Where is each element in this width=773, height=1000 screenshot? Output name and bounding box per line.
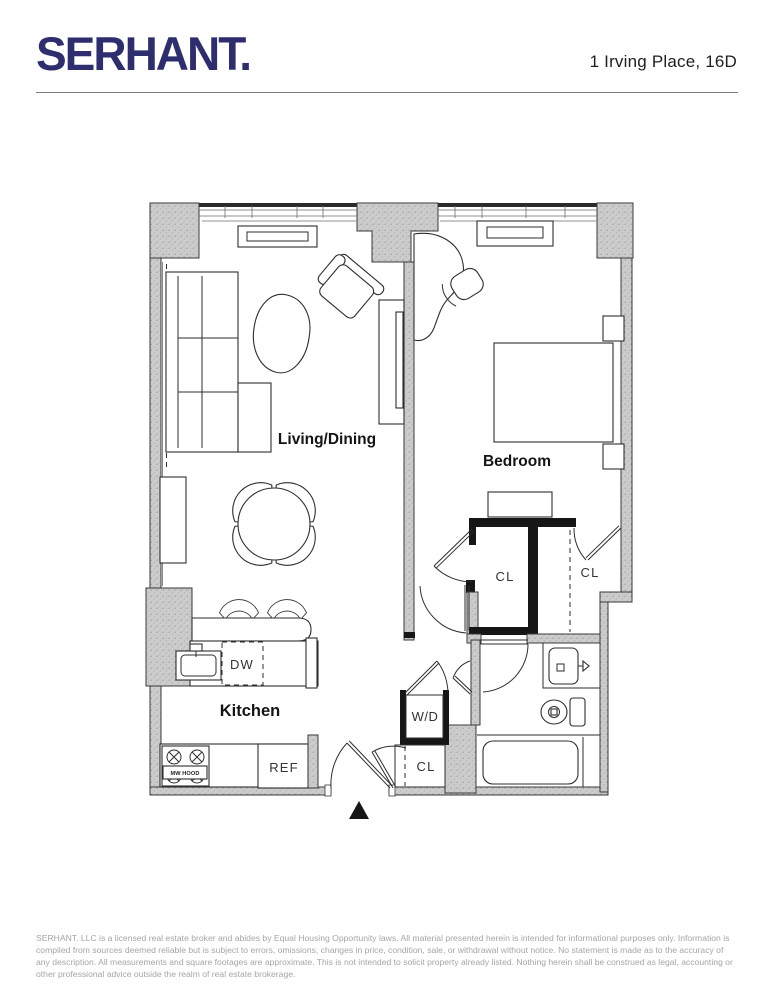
bathroom-sink [549,648,589,684]
nightstand [603,444,624,469]
island-seating-counter [192,618,311,641]
island-end-cap [306,638,317,688]
closet-top-wall [469,518,576,527]
bathroom-top-wall [527,634,600,643]
bottom-wall-right [389,787,608,795]
bedroom-door [420,585,469,633]
closet-label: CL [416,759,435,774]
footer-disclaimer: SERHANT. LLC is a licensed real estate b… [36,933,738,980]
dining-set [223,473,326,576]
closets: CL CL [495,530,599,632]
tv [396,312,403,408]
wd-wall-bottom [400,738,449,745]
bathroom [477,643,600,787]
bed [494,343,613,442]
bedroom-ptac-unit [477,221,553,246]
closet-jamb-upper [469,527,476,545]
right-wall [621,258,632,592]
closet-door-left [434,529,474,582]
stove: MW HOOD [162,746,209,786]
right-wall-step [600,592,632,602]
door-jamb-left [325,785,331,796]
sectional-sofa [166,272,271,452]
bathroom-door [480,640,528,692]
dining-table [238,488,310,560]
nightstand [603,316,624,341]
closet-door-right [574,526,621,560]
wd-wall-right [443,690,449,740]
washer-dryer-bifold-door [405,661,472,695]
living-bedroom-partition [404,262,414,640]
entry-closet-door [372,746,406,788]
partition-end-cap [404,632,415,638]
floorplan-drawing: Living/Dining Bedroom CL CL [0,0,773,1000]
bathtub [477,735,600,787]
counter-stool [220,600,259,620]
bathroom-right-wall [600,602,608,792]
coffee-table [253,294,310,372]
counter-stool [268,600,307,620]
north-arrow [349,801,369,819]
left-wall-lower [150,686,161,791]
bedroom: Bedroom [414,221,624,517]
refrigerator-label: REF [269,760,299,775]
dresser [488,492,552,517]
sideboard [160,477,186,563]
bathroom-left-wall [471,640,480,725]
kitchen-label: Kitchen [220,702,281,720]
wd-wall-left [400,690,406,740]
corner-column-top-left [150,203,199,258]
washer-dryer-label: W/D [412,709,439,724]
floorplan-sheet: SERHANT. 1 Irving Place, 16D [0,0,773,1000]
kitchen-end-column [308,735,318,788]
closet-label: CL [495,569,514,584]
closet-label: CL [580,565,599,580]
left-wall [150,258,161,588]
living-ptac-unit [238,226,317,247]
corner-column-top-right [597,203,633,258]
bedroom-label: Bedroom [483,453,551,470]
living-dining-room: Living/Dining [160,226,404,575]
toilet [541,698,585,726]
dishwasher-label: DW [230,657,254,672]
living-dining-label: Living/Dining [278,431,376,448]
entry-closet-column [445,725,476,793]
closet-separator-wall [528,527,538,634]
microwave-hood-label: MW HOOD [171,771,200,777]
